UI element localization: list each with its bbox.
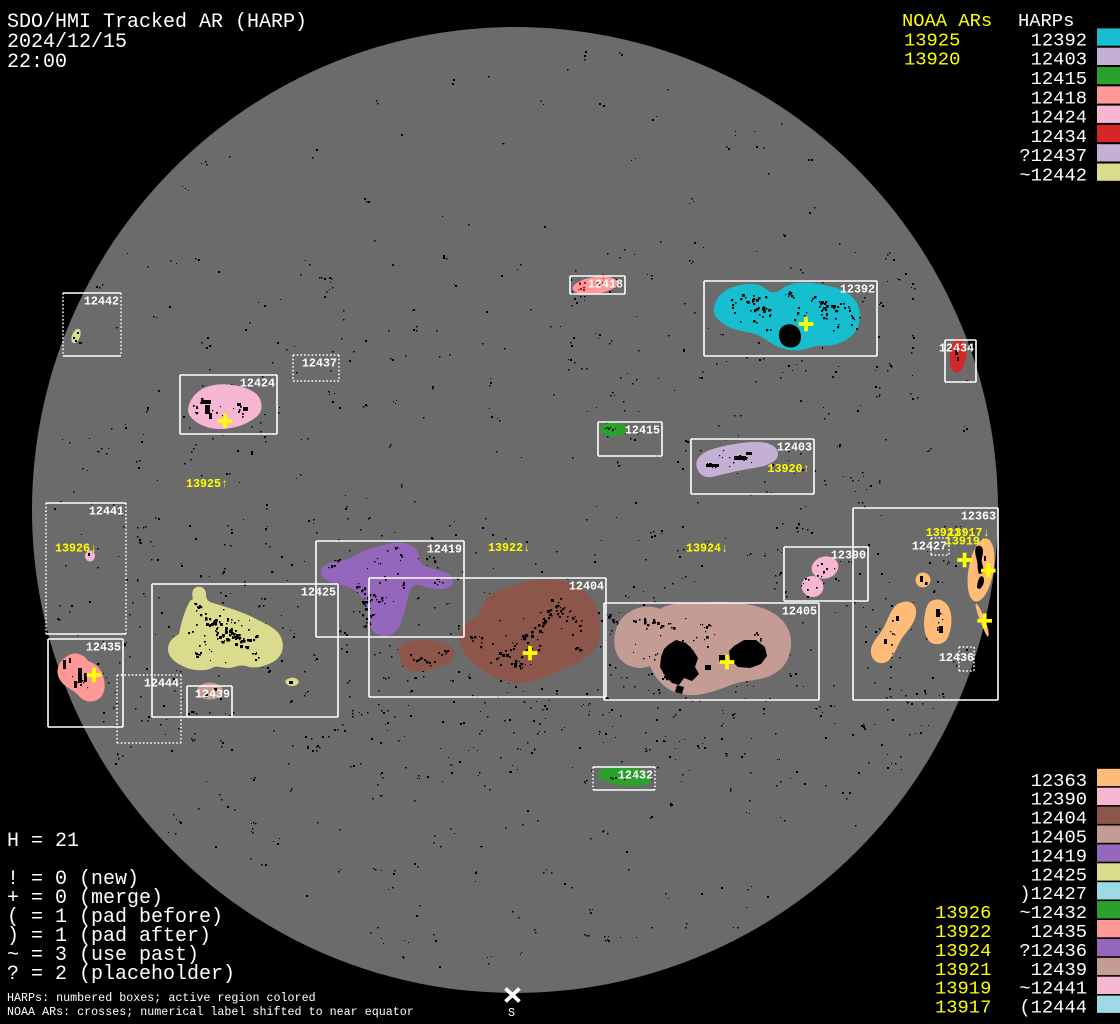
svg-text:~12442: ~12442 <box>1019 165 1087 187</box>
svg-text:12403: 12403 <box>777 441 812 455</box>
svg-text:12442: 12442 <box>84 295 119 309</box>
svg-text:12435: 12435 <box>86 641 121 655</box>
svg-text:12405: 12405 <box>782 605 817 619</box>
svg-text:13924↓: 13924↓ <box>686 542 728 556</box>
svg-text:13917: 13917 <box>935 997 991 1019</box>
svg-text:H = 21: H = 21 <box>7 830 79 853</box>
svg-text:13919↓: 13919↓ <box>945 535 987 549</box>
svg-text:12434: 12434 <box>939 342 974 356</box>
svg-text:12427: 12427 <box>912 540 947 554</box>
svg-text:12444: 12444 <box>144 677 179 691</box>
svg-text:12441: 12441 <box>89 505 124 519</box>
svg-text:S: S <box>508 1006 515 1020</box>
svg-text:NOAA ARs: crosses; numerical l: NOAA ARs: crosses; numerical label shift… <box>7 1005 414 1019</box>
svg-text:22:00: 22:00 <box>7 51 67 74</box>
svg-text:13925↑: 13925↑ <box>186 477 228 491</box>
svg-text:13920: 13920 <box>904 49 960 71</box>
svg-text:HARPs: numbered boxes; active: HARPs: numbered boxes; active region col… <box>7 991 316 1005</box>
svg-text:12437: 12437 <box>302 357 337 371</box>
svg-text:12436: 12436 <box>939 651 974 665</box>
svg-text:13922↓: 13922↓ <box>488 541 530 555</box>
svg-text:12419: 12419 <box>427 543 462 557</box>
svg-text:(12444: (12444 <box>1019 997 1087 1019</box>
svg-text:12424: 12424 <box>240 377 275 391</box>
svg-text:13920↑: 13920↑ <box>768 462 810 476</box>
svg-text:12363: 12363 <box>961 510 996 524</box>
svg-text:12432: 12432 <box>618 769 653 783</box>
svg-text:12415: 12415 <box>625 424 660 438</box>
svg-text:12392: 12392 <box>840 283 875 297</box>
svg-text:12439: 12439 <box>195 688 230 702</box>
svg-text:12390: 12390 <box>831 549 866 563</box>
svg-text:12425: 12425 <box>301 586 336 600</box>
svg-text:13926↓: 13926↓ <box>55 542 97 556</box>
svg-text:12418: 12418 <box>588 278 623 292</box>
svg-text:? = 2 (placeholder): ? = 2 (placeholder) <box>7 963 235 986</box>
svg-text:12404: 12404 <box>569 580 604 594</box>
